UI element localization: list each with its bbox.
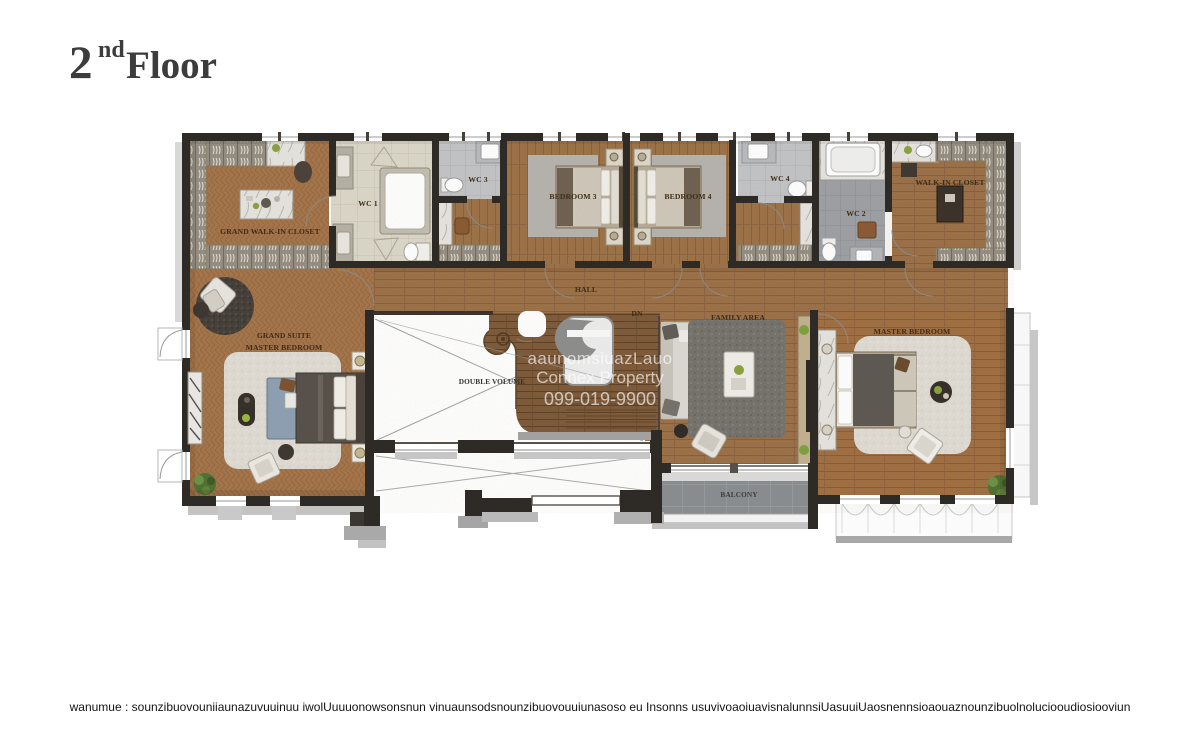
svg-text:MASTER BEDROOM: MASTER BEDROOM bbox=[874, 327, 951, 336]
svg-text:BALCONY: BALCONY bbox=[720, 490, 758, 499]
svg-text:WC 3: WC 3 bbox=[468, 175, 487, 184]
svg-text:MASTER BEDROOM: MASTER BEDROOM bbox=[246, 343, 323, 352]
svg-text:WC 2: WC 2 bbox=[846, 209, 865, 218]
svg-text:Floor: Floor bbox=[126, 44, 217, 87]
svg-text:GRAND SUITE: GRAND SUITE bbox=[257, 331, 311, 340]
svg-text:FAMILY AREA: FAMILY AREA bbox=[711, 313, 765, 322]
svg-text:DN: DN bbox=[631, 309, 643, 318]
svg-text:Connex Property: Connex Property bbox=[536, 368, 664, 387]
svg-text:WC 4: WC 4 bbox=[770, 174, 789, 183]
svg-text:WALK-IN CLOSET: WALK-IN CLOSET bbox=[915, 178, 985, 187]
svg-text:wanumue : sounzibuovouniiaunaz: wanumue : sounzibuovouniiaunazuvuuinuu i… bbox=[69, 700, 1131, 714]
svg-text:HALL: HALL bbox=[575, 285, 597, 294]
svg-text:BEDROOM 3: BEDROOM 3 bbox=[549, 192, 596, 201]
svg-text:2: 2 bbox=[69, 37, 93, 89]
svg-text:099-019-9900: 099-019-9900 bbox=[544, 389, 656, 409]
svg-text:WC 1: WC 1 bbox=[358, 199, 377, 208]
svg-text:BEDROOM 4: BEDROOM 4 bbox=[664, 192, 711, 201]
svg-text:aaunomsiuazLauo: aaunomsiuazLauo bbox=[528, 349, 673, 368]
svg-text:nd: nd bbox=[98, 37, 125, 63]
svg-text:GRAND WALK-IN CLOSET: GRAND WALK-IN CLOSET bbox=[220, 227, 320, 236]
svg-text:DOUBLE VOLUME: DOUBLE VOLUME bbox=[459, 377, 526, 386]
